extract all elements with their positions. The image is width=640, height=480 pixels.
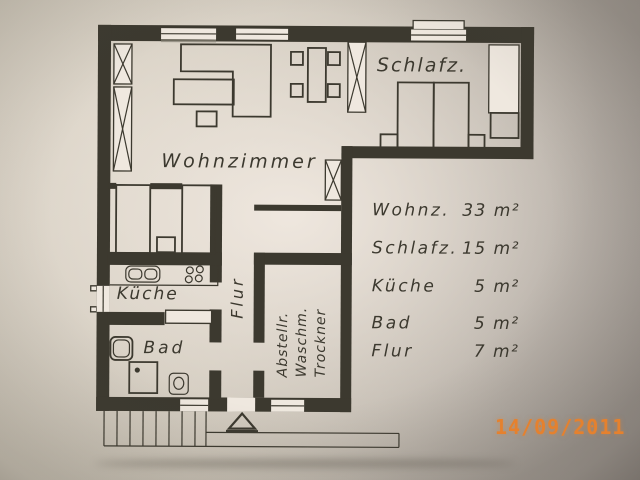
legend-label: Bad <box>372 313 412 333</box>
bed-right <box>433 83 468 149</box>
wall-storage-north <box>254 253 352 266</box>
wardrobe <box>489 45 519 113</box>
chair <box>291 52 303 65</box>
wall-kitchen-south <box>108 312 165 325</box>
camera-date-stamp: 14/09/2011 <box>495 415 625 439</box>
legend-row: Schlafz. 15 m² <box>372 238 522 261</box>
wall-livingroom-south-right <box>254 205 341 211</box>
legend-value: 5 m² <box>434 314 520 334</box>
dresser <box>491 113 519 138</box>
bed-left <box>397 82 433 148</box>
legend-row: Bad 5 m² <box>372 313 522 336</box>
wall-east-lower <box>340 146 352 412</box>
room-label-abstellraum-line: Abstellr. <box>274 283 293 377</box>
room-label-kueche: Küche <box>117 284 179 304</box>
wall-south <box>96 397 351 412</box>
window-north-1 <box>161 28 216 42</box>
room-label-bad: Bad <box>143 338 185 358</box>
toilet <box>169 373 188 394</box>
nightstand-left <box>380 134 397 148</box>
paper-shadow <box>95 459 515 468</box>
legend-row: Wohnz. 33 m² <box>372 200 522 223</box>
nightstand-right <box>468 135 484 149</box>
entrance-arrow-icon <box>226 414 258 432</box>
legend-label: Küche <box>372 276 437 296</box>
stool <box>197 111 217 126</box>
legend-label: Flur <box>371 341 413 361</box>
wall-livingroom-south-left <box>150 183 182 189</box>
dining-table <box>308 48 326 102</box>
xbox-east <box>325 160 341 200</box>
coffee-table <box>174 79 234 104</box>
room-label-abstellraum-line: Waschm. <box>293 283 312 377</box>
small-cabinet <box>157 237 175 252</box>
kitchen-door-leaf <box>166 310 212 323</box>
shower <box>129 362 157 393</box>
wall-west <box>96 25 111 411</box>
xbox-room-divider <box>348 42 366 112</box>
window-storage-south <box>271 400 304 412</box>
wall-storage-west-upper <box>253 253 264 343</box>
room-label-abstellraum-line: Trockner <box>312 283 331 377</box>
chair <box>328 84 340 97</box>
wall-storage-west-lower <box>253 371 264 398</box>
xbox-west-2 <box>113 87 131 171</box>
legend-value: 7 m² <box>433 342 519 362</box>
room-label-wohnzimmer: Wohnzimmer <box>161 150 317 173</box>
wall-east-bedroom <box>520 27 534 159</box>
wall-livingroom-south-stub <box>108 183 116 189</box>
xbox-west-1 <box>114 44 132 84</box>
photo-of-floorplan: Wohnzimmer Schlafz. Küche Bad Flur Abste… <box>0 0 640 480</box>
legend-value: 33 m² <box>434 201 520 221</box>
chair <box>328 52 340 65</box>
room-label-flur: Flur <box>228 263 248 333</box>
washbasin <box>110 337 132 360</box>
window-south <box>180 399 208 411</box>
window-north-2 <box>236 29 288 40</box>
wall-flur-west-lower <box>209 370 221 399</box>
corner-sofa <box>181 44 271 116</box>
kitchen-sink <box>126 266 160 282</box>
stove-burners <box>185 266 203 283</box>
legend-row: Küche 5 m² <box>372 276 522 299</box>
legend-value: 5 m² <box>434 277 520 297</box>
room-label-abstellraum: Abstellr. Waschm. Trockner <box>274 283 331 377</box>
room-label-schlafzimmer: Schlafz. <box>377 54 467 76</box>
chair <box>291 84 303 97</box>
floorplan-drawing <box>0 0 640 480</box>
window-bedroom <box>411 20 466 40</box>
door-leaf-left <box>116 185 150 253</box>
legend-row: Flur 7 m² <box>371 341 521 364</box>
entrance-door-opening <box>227 398 255 412</box>
window-kitchen-west <box>91 286 110 312</box>
floorplan: Wohnzimmer Schlafz. Küche Bad Flur Abste… <box>0 0 640 480</box>
legend-value: 15 m² <box>434 239 520 259</box>
